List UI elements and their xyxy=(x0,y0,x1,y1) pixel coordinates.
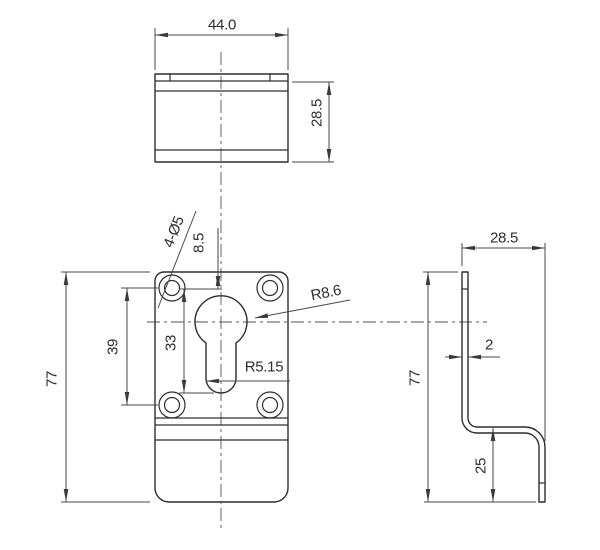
top-view-outline xyxy=(155,74,288,162)
hole-top-left xyxy=(165,281,180,296)
dim-side-depth-label: 28.5 xyxy=(490,230,518,247)
holes-callout-label: 4-Ø5 xyxy=(160,214,188,250)
hole-top-right xyxy=(263,281,278,296)
bulge-radius-leader xyxy=(255,300,350,318)
front-plate-outline xyxy=(155,272,288,502)
hole-bottom-right xyxy=(263,398,278,413)
front-view: 77 39 33 8.5 4-Ø5 R8.6 R5.15 xyxy=(44,211,351,502)
bulge-radius-label: R8.6 xyxy=(309,282,342,305)
slot-radius-label: R5.15 xyxy=(245,359,284,376)
hole-bottom-left-countersink xyxy=(159,392,185,418)
engineering-drawing-canvas: 44.0 28.5 77 xyxy=(0,0,600,550)
hole-top-left-countersink xyxy=(159,275,185,301)
dim-edge-offset-label: 8.5 xyxy=(191,233,208,253)
hole-bottom-right-countersink xyxy=(257,392,283,418)
dim-thickness-label: 2 xyxy=(485,337,493,354)
dim-side-height-label: 77 xyxy=(407,370,424,386)
bracket-drawing: 44.0 28.5 77 xyxy=(0,0,600,550)
dim-top-depth-label: 28.5 xyxy=(309,99,326,127)
dim-front-height-label: 77 xyxy=(44,371,61,387)
hole-top-right-countersink xyxy=(257,275,283,301)
side-view: 28.5 77 2 25 xyxy=(407,230,546,503)
hole-bottom-left xyxy=(165,398,180,413)
dim-slot-length-label: 33 xyxy=(163,335,180,351)
dim-top-width-label: 44.0 xyxy=(208,17,236,34)
dim-hole-spacing-label: 39 xyxy=(105,339,122,355)
dim-flange-height-label: 25 xyxy=(473,458,490,474)
top-view: 44.0 28.5 xyxy=(155,17,334,163)
